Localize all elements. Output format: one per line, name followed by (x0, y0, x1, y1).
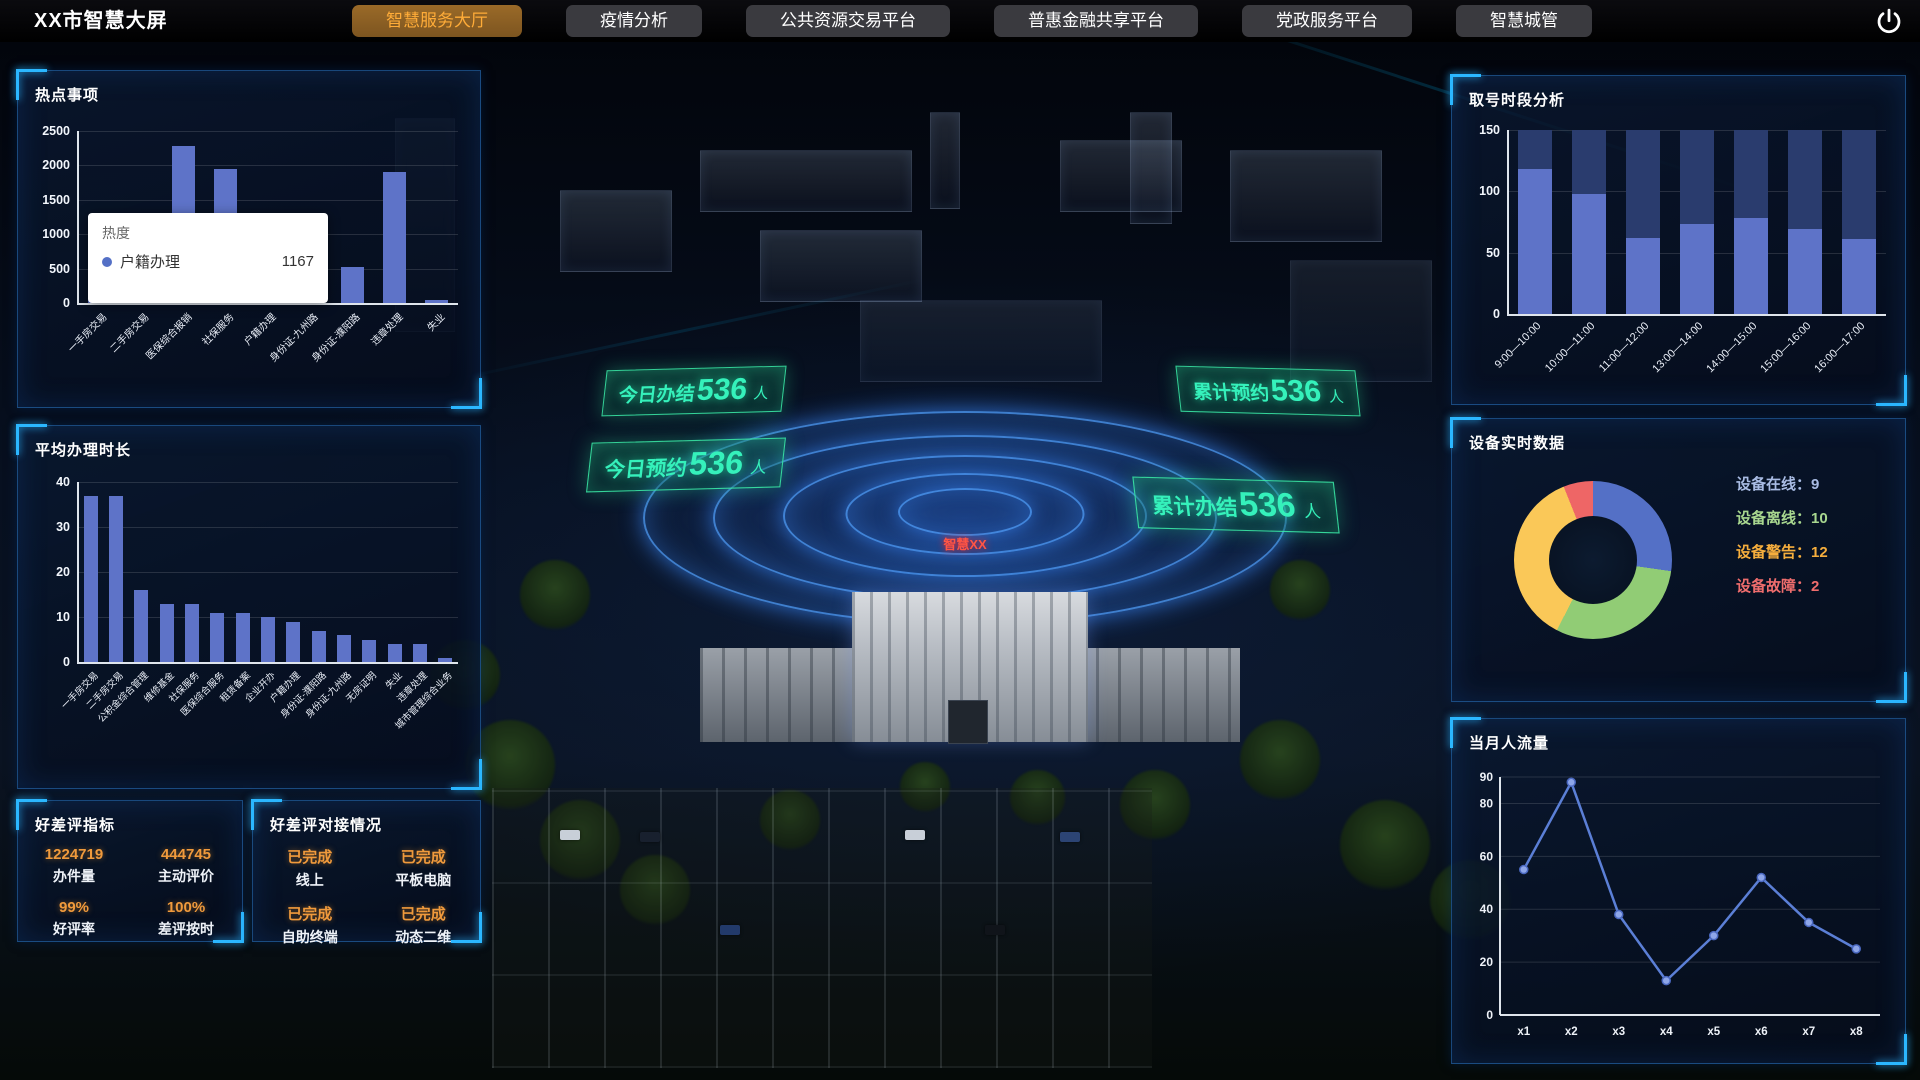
panel-title: 好差评对接情况 (253, 801, 480, 835)
bar[interactable] (341, 267, 364, 303)
panel-rating-integration: 好差评对接情况 已完成线上已完成平板电脑已完成自助终端已完成动态二维 (252, 800, 481, 942)
page-title: XX市智慧大屏 (34, 0, 168, 42)
y-axis-tick-label: 2500 (42, 124, 70, 138)
tooltip-series-name: 户籍办理 (120, 251, 180, 272)
stat-label: 办件量 (18, 866, 130, 886)
y-axis-tick-label: 1000 (42, 227, 70, 241)
x-axis-label: 一手房交易 (64, 309, 110, 355)
car (560, 830, 580, 840)
panel-title: 平均办理时长 (18, 426, 480, 460)
tree (520, 560, 590, 630)
gridline (78, 131, 458, 132)
bar[interactable] (337, 635, 351, 662)
bar[interactable] (185, 604, 199, 663)
car (1060, 832, 1080, 842)
line-chart-svg: 02040608090x1x2x3x4x5x6x7x8 (1462, 763, 1894, 1051)
monthly-flow-line-chart: 02040608090x1x2x3x4x5x6x7x8 (1462, 763, 1894, 1051)
bar[interactable] (134, 590, 148, 662)
background-building (1290, 260, 1432, 382)
axis-tick-label: x5 (1707, 1026, 1720, 1038)
axis-tick-label: 60 (1480, 849, 1494, 863)
tree (1240, 720, 1320, 800)
panel-monthly-visitor-flow: 当月人流量 02040608090x1x2x3x4x5x6x7x8 (1451, 718, 1906, 1064)
tree (1340, 800, 1430, 890)
gridline (78, 527, 458, 528)
x-axis-label: 10:00—11:00 (1543, 320, 1598, 375)
background-building (760, 230, 922, 302)
y-axis-tick-label: 2000 (42, 158, 70, 172)
data-point[interactable] (1567, 778, 1575, 786)
parking-lot (492, 788, 1152, 1068)
avg-time-bar-chart: 010203040一手房交易二手房交易公积金综合管理维修基金社保服务医保综合服务… (32, 468, 466, 774)
car (985, 925, 1005, 935)
stat-item: 444745主动评价 (130, 846, 242, 886)
stat-item: 100%差评按时 (130, 899, 242, 939)
panel-title: 当月人流量 (1452, 719, 1905, 753)
power-button[interactable] (1874, 7, 1904, 37)
car (720, 925, 740, 935)
y-axis-tick-label: 10 (56, 610, 70, 624)
overlay-value: 536 (687, 445, 745, 483)
car (905, 830, 925, 840)
bar[interactable] (1572, 194, 1605, 314)
axis-tick-label: x2 (1565, 1026, 1578, 1038)
x-axis-label: 失业 (423, 309, 448, 334)
bar[interactable] (210, 613, 224, 663)
y-axis-line (77, 482, 79, 662)
axis-tick-label: x4 (1660, 1026, 1673, 1038)
stat-item: 99%好评率 (18, 899, 130, 939)
panel-avg-processing-time: 平均办理时长 010203040一手房交易二手房交易公积金综合管理维修基金社保服… (17, 425, 481, 789)
panel-title: 好差评指标 (18, 801, 242, 835)
panel-queue-time-analysis: 取号时段分析 0501001509:00—10:0010:00—11:0011:… (1451, 75, 1906, 405)
y-axis-tick-label: 40 (56, 475, 70, 489)
stat-value: 100% (130, 899, 242, 916)
overlay-unit: 人 (752, 382, 769, 403)
queue-analysis-bar-chart: 0501001509:00—10:0010:00—11:0011:00—12:0… (1464, 118, 1894, 394)
bar[interactable] (236, 613, 250, 663)
y-axis-tick-label: 150 (1479, 123, 1500, 137)
y-axis-line (1507, 130, 1509, 314)
x-axis-line (77, 303, 458, 305)
nav-tab-1[interactable]: 智慧服务大厅 (352, 5, 522, 37)
axis-tick-label: x8 (1850, 1026, 1863, 1038)
bar[interactable] (362, 640, 376, 663)
background-building (1130, 112, 1172, 224)
bar[interactable] (160, 604, 174, 663)
legend-item-2: 设备离线：10 (1736, 507, 1828, 528)
background-building (860, 300, 1102, 382)
stat-value: 已完成 (253, 903, 367, 924)
y-axis-tick-label: 500 (49, 262, 70, 276)
stat-item: 1224719办件量 (18, 846, 130, 886)
y-axis-tick-label: 20 (56, 565, 70, 579)
gridline (78, 482, 458, 483)
stat-item: 已完成平板电脑 (367, 846, 481, 890)
stat-value: 已完成 (367, 846, 481, 867)
x-axis-label: 15:00—16:00 (1758, 320, 1813, 375)
background-building (700, 150, 912, 212)
stat-label: 差评按时 (130, 919, 242, 939)
car (640, 832, 660, 842)
rating-integration-stats: 已完成线上已完成平板电脑已完成自助终端已完成动态二维 (253, 835, 480, 947)
x-axis-label: 户籍办理 (240, 309, 279, 348)
nav-tabs: 智慧服务大厅疫情分析公共资源交易平台普惠金融共享平台党政服务平台智慧城管 (352, 5, 1592, 37)
stat-item: 已完成自助终端 (253, 903, 367, 947)
panel-title: 热点事项 (18, 71, 480, 105)
x-axis-label: 11:00—12:00 (1597, 320, 1652, 375)
x-axis-line (77, 662, 458, 664)
overlay-label: 累计办结 (1150, 489, 1239, 522)
y-axis-line (77, 131, 79, 303)
background-building (930, 112, 960, 209)
axis-tick-label: 20 (1480, 955, 1494, 969)
stat-item: 已完成线上 (253, 846, 367, 890)
bar[interactable] (1842, 239, 1875, 314)
building-entrance (948, 700, 988, 744)
stat-label: 自助终端 (253, 927, 367, 947)
bar[interactable] (1680, 224, 1713, 314)
power-icon (1874, 7, 1904, 37)
panel-rating-metrics: 好差评指标 1224719办件量444745主动评价99%好评率100%差评按时 (17, 800, 243, 942)
hologram-ring (898, 488, 1032, 536)
y-axis-tick-label: 1500 (42, 193, 70, 207)
tooltip-series-dot (102, 257, 112, 267)
stat-value: 99% (18, 899, 130, 916)
donut-hole (1549, 516, 1637, 604)
panel-title: 取号时段分析 (1452, 76, 1905, 110)
stat-value: 已完成 (367, 903, 481, 924)
top-nav-bar: XX市智慧大屏 智慧服务大厅疫情分析公共资源交易平台普惠金融共享平台党政服务平台… (0, 0, 1920, 42)
data-point[interactable] (1662, 977, 1670, 985)
y-axis-tick-label: 0 (63, 655, 70, 669)
x-axis-line (1507, 314, 1886, 316)
nav-tab-3[interactable]: 公共资源交易平台 (746, 5, 950, 37)
bar[interactable] (312, 631, 326, 663)
x-axis-label: 14:00—15:00 (1704, 320, 1759, 375)
axis-tick-label: x3 (1612, 1026, 1625, 1038)
overlay-total-completed: 累计办结536人 (1132, 477, 1340, 534)
overlay-today-completed: 今日办结536人 (601, 366, 786, 417)
axis-tick-label: 80 (1480, 796, 1494, 810)
nav-tab-4[interactable]: 普惠金融共享平台 (994, 5, 1198, 37)
axis-tick-label: x7 (1802, 1026, 1815, 1038)
bar[interactable] (286, 622, 300, 663)
overlay-label: 今日预约 (603, 452, 688, 483)
device-status-donut-chart[interactable] (1514, 481, 1672, 639)
stat-label: 线上 (253, 870, 367, 890)
axis-tick-label: 0 (1486, 1008, 1493, 1022)
overlay-value: 536 (695, 373, 749, 408)
overlay-total-reserved: 累计预约536人 (1175, 366, 1360, 417)
stat-value: 1224719 (18, 846, 130, 863)
background-building (1230, 150, 1382, 242)
nav-tab-2[interactable]: 疫情分析 (566, 5, 702, 37)
stat-label: 平板电脑 (367, 870, 481, 890)
tooltip-series-value: 1167 (256, 253, 314, 270)
overlay-unit: 人 (1302, 499, 1322, 523)
legend-item-1: 设备在线：9 (1736, 473, 1828, 494)
tooltip-title: 热度 (102, 223, 314, 243)
nav-tab-5[interactable]: 党政服务平台 (1242, 5, 1412, 37)
overlay-label: 累计预约 (1192, 377, 1271, 406)
overlay-value: 536 (1237, 486, 1297, 526)
data-point[interactable] (1805, 918, 1813, 926)
overlay-today-reserved: 今日预约536人 (586, 438, 786, 493)
y-axis-tick-label: 0 (1493, 307, 1500, 321)
data-point[interactable] (1852, 945, 1860, 953)
background-building (560, 190, 672, 272)
axis-tick-label: 90 (1480, 770, 1494, 784)
data-point[interactable] (1615, 911, 1623, 919)
x-axis-label: 13:00—14:00 (1650, 320, 1705, 375)
building-sign: 智慧XX (943, 534, 986, 553)
chart-tooltip: 热度 户籍办理 1167 (88, 213, 328, 303)
x-axis-label: 社保服务 (197, 309, 236, 348)
y-axis-tick-label: 100 (1479, 184, 1500, 198)
bar[interactable] (1734, 218, 1767, 314)
legend-item-4: 设备故障：2 (1736, 575, 1828, 596)
data-point[interactable] (1520, 866, 1528, 874)
bar[interactable] (438, 658, 452, 663)
y-axis-tick-label: 30 (56, 520, 70, 534)
stat-label: 好评率 (18, 919, 130, 939)
bar[interactable] (388, 644, 402, 662)
device-status-legend: 设备在线：9设备离线：10设备警告：12设备故障：2 (1736, 473, 1828, 596)
nav-tab-6[interactable]: 智慧城管 (1456, 5, 1592, 37)
overlay-unit: 人 (749, 455, 768, 478)
flow-line-series (1524, 782, 1857, 980)
bar[interactable] (1626, 238, 1659, 314)
panel-title: 设备实时数据 (1452, 419, 1905, 453)
bar[interactable] (1518, 169, 1551, 314)
tree (1270, 560, 1330, 620)
overlay-value: 536 (1269, 374, 1323, 409)
legend-item-3: 设备警告：12 (1736, 541, 1828, 562)
gridline (78, 165, 458, 166)
bar[interactable] (413, 644, 427, 662)
bar[interactable] (109, 496, 123, 663)
x-axis-label: 16:00—17:00 (1812, 320, 1867, 375)
axis-tick-label: x6 (1755, 1026, 1768, 1038)
stat-label: 主动评价 (130, 866, 242, 886)
data-point[interactable] (1757, 873, 1765, 881)
overlay-unit: 人 (1327, 386, 1344, 407)
bar[interactable] (1788, 229, 1821, 314)
gridline (78, 572, 458, 573)
stat-item: 已完成动态二维 (367, 903, 481, 947)
bar[interactable] (84, 496, 98, 663)
bar[interactable] (425, 300, 448, 303)
x-axis-label: 9:00—10:00 (1493, 320, 1544, 371)
axis-tick-label: x1 (1517, 1026, 1530, 1038)
x-axis-label: 违章处理 (366, 309, 405, 348)
data-point[interactable] (1710, 932, 1718, 940)
bar[interactable] (383, 172, 406, 303)
stat-label: 动态二维 (367, 927, 481, 947)
rating-metrics-stats: 1224719办件量444745主动评价99%好评率100%差评按时 (18, 835, 242, 939)
panel-device-realtime-data: 设备实时数据 设备在线：9设备离线：10设备警告：12设备故障：2 (1451, 418, 1906, 702)
bar[interactable] (261, 617, 275, 662)
stat-value: 444745 (130, 846, 242, 863)
stat-value: 已完成 (253, 846, 367, 867)
overlay-label: 今日办结 (617, 379, 696, 408)
y-axis-tick-label: 0 (63, 296, 70, 310)
y-axis-tick-label: 50 (1486, 246, 1500, 260)
axis-tick-label: 40 (1480, 902, 1494, 916)
